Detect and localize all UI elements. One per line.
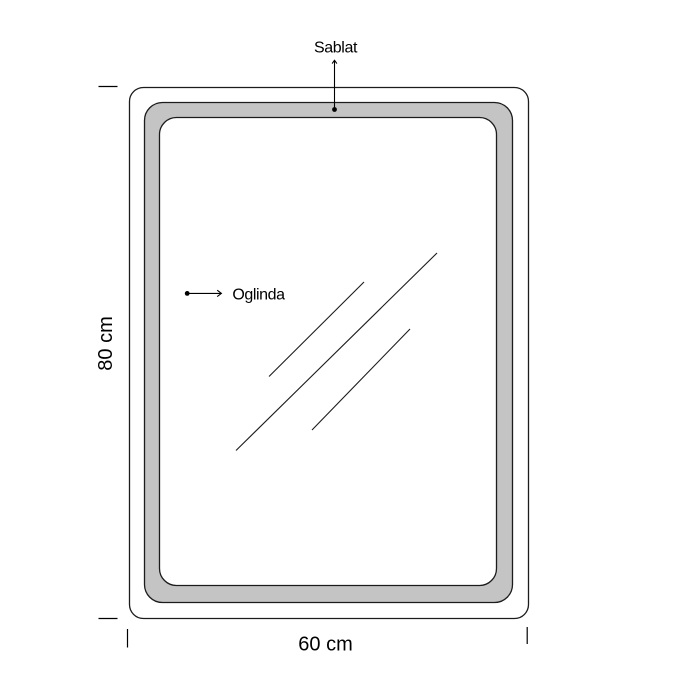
svg-text:80 cm: 80 cm <box>95 316 117 370</box>
svg-text:60 cm: 60 cm <box>298 634 352 656</box>
svg-text:Sablat: Sablat <box>314 40 358 57</box>
svg-text:Oglinda: Oglinda <box>232 287 285 304</box>
